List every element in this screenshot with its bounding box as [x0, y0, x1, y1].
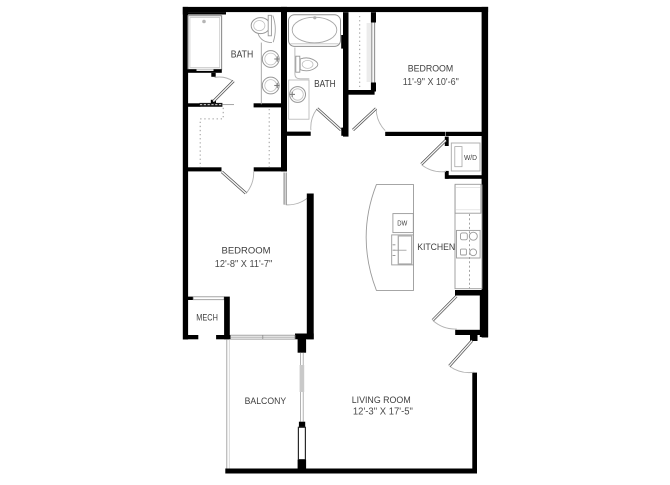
- svg-text:LIVING ROOM: LIVING ROOM: [352, 395, 411, 406]
- svg-text:MECH: MECH: [196, 312, 218, 322]
- svg-text:KITCHEN: KITCHEN: [417, 242, 455, 253]
- svg-text:12'-8" X 11'-7": 12'-8" X 11'-7": [215, 259, 273, 270]
- svg-text:12'-3" X 17'-5": 12'-3" X 17'-5": [353, 407, 413, 418]
- svg-text:BATH: BATH: [314, 79, 336, 90]
- svg-text:W/D: W/D: [464, 153, 477, 162]
- svg-text:BATH: BATH: [231, 50, 254, 61]
- svg-text:DW: DW: [397, 218, 408, 227]
- svg-text:11'-9" X 10'-6": 11'-9" X 10'-6": [403, 77, 459, 88]
- svg-text:BEDROOM: BEDROOM: [222, 246, 271, 256]
- svg-text:BALCONY: BALCONY: [245, 396, 287, 407]
- svg-text:BEDROOM: BEDROOM: [408, 63, 454, 73]
